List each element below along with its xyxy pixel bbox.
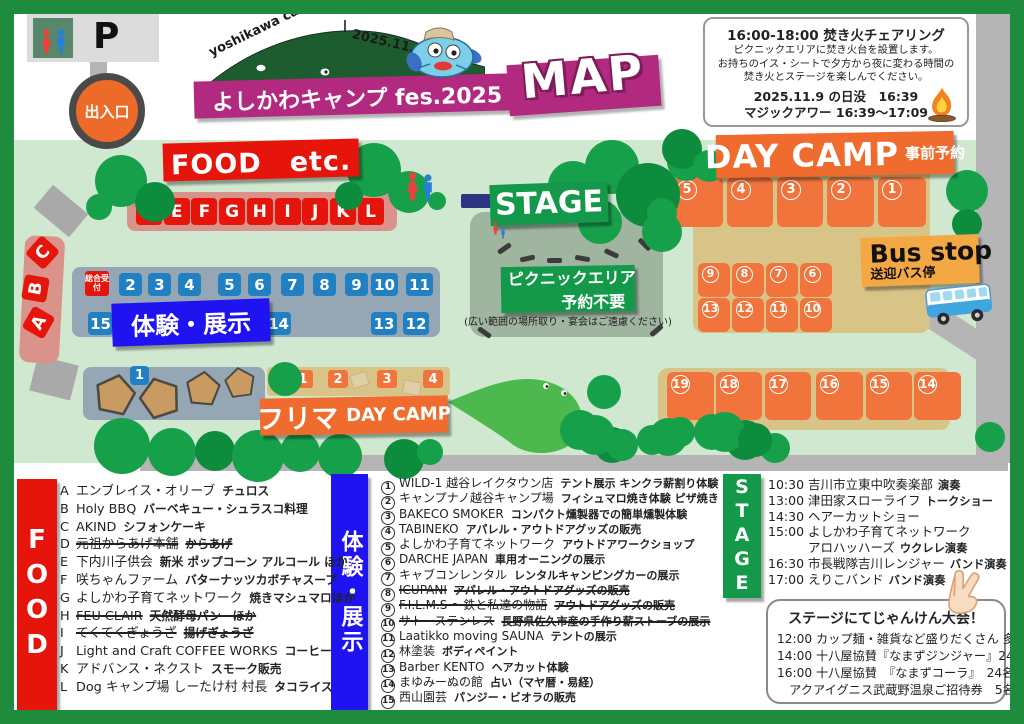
- stall-box-B: B: [21, 274, 50, 303]
- daycamp-spot-2: 2: [827, 177, 874, 227]
- food-legend-banner: FOOD: [17, 479, 57, 710]
- taiken-item-10: 10サトーステンレス長野県佐久市産の手作り薪ストーブの展示: [381, 614, 719, 629]
- stall-box-F: F: [191, 198, 217, 225]
- taiken-spot-10: 10: [371, 273, 398, 296]
- taiken-list: 1WILD-1 越谷レイクタウン店テント展示 キンクラ薪割り体験2キャンプナノ越…: [381, 476, 719, 705]
- food-item-detail: チュロス: [222, 484, 269, 498]
- taiken-item-name: Laatikko moving SAUNA: [399, 629, 544, 643]
- taiken-item-4: 4TABINEKOアパレル・アウトドアグッズの販売: [381, 522, 719, 537]
- frame-border-left: [0, 0, 14, 724]
- food-item-C: CAKINDシフォンケーキ: [60, 519, 355, 537]
- stage-item-time: 13:00: [768, 493, 808, 509]
- info-line: 焚き火とステージを楽しんでください。: [705, 71, 967, 85]
- food-item-name: Dog キャンプ場 しーたけ村 村長: [76, 680, 267, 695]
- food-item-F: F咲ちゃんファームバターナッツカボチャスープ: [60, 572, 355, 590]
- daycamp-banner-sub: 事前予約: [905, 142, 965, 164]
- daycamp-spot-13: 13: [698, 298, 730, 332]
- bus-stop-sign: Bus stop 送迎バス停: [860, 234, 980, 287]
- bus-stop-title: Bus stop: [869, 237, 992, 267]
- food-item-key: A: [60, 483, 76, 501]
- taiken-spot-8: 8: [313, 273, 336, 296]
- taiken-spot-9: 9: [345, 273, 368, 296]
- daycamp-spot-number: 15: [870, 375, 889, 394]
- taiken-item-12: 12林塗装ボディペイント: [381, 644, 719, 659]
- food-item-detail: シフォンケーキ: [123, 520, 205, 534]
- gate-label: 出入口: [84, 101, 129, 122]
- tree-icon: [94, 418, 150, 474]
- woman-icon: [492, 222, 499, 235]
- stage-item-time: 16:30: [768, 556, 808, 572]
- stage-item: アロハッハーズウクレレ演奏: [768, 540, 1007, 556]
- bus-stop-sub: 送迎バス停: [870, 265, 935, 282]
- janken-line: 12:00 カップ麺・雑貨など盛りだくさん 多数: [768, 631, 1004, 648]
- stage-platform: [461, 194, 492, 208]
- taiken-item-name: DARCHE JAPAN: [399, 552, 488, 566]
- stage-legend-label: STAGE: [731, 476, 753, 596]
- tree-icon: [975, 422, 1005, 452]
- picnic-note: (広い範囲の場所取り・宴会はご遠慮ください): [462, 313, 674, 328]
- taiken-item-detail: アウトドアグッズの販売: [554, 599, 675, 612]
- stage-item: 13:00津田家スローライフトークショー: [768, 493, 1007, 509]
- food-item-key: F: [60, 572, 76, 590]
- food-item-D: D元祖からあげ本舗からあげ: [60, 536, 355, 554]
- stage-item-name: よしかわ子育てネットワーク: [808, 524, 971, 539]
- taiken-item-name: Barber KENTO: [399, 660, 484, 674]
- food-item-A: Aエンブレイス・オリーブチュロス: [60, 483, 355, 501]
- bonfire-info-box: 16:00-18:00 焚き火チェアリング ピクニックエリアに焚き火台を設置しま…: [703, 17, 969, 127]
- tree-icon: [148, 428, 196, 476]
- daycamp-spot-number: 4: [731, 180, 751, 200]
- taiken-item-name: まゆみーぬの館: [399, 675, 483, 689]
- flea-banner-title: フリマ: [257, 396, 339, 436]
- food-item-name: FEU CLAIR: [76, 609, 143, 624]
- tree-icon: [417, 439, 443, 465]
- picnic-dash: [547, 258, 562, 263]
- stage-item-name: ヘアーカットショー: [808, 509, 920, 524]
- food-item-detail: 揚げぎょうざ: [184, 626, 254, 640]
- taiken-item-9: 9F.I.L.M.S ～鉄と私達の物語アウトドアグッズの販売: [381, 598, 719, 613]
- flea-banner: フリマ DAY CAMP: [260, 395, 449, 435]
- daycamp-spot-number: 8: [736, 266, 753, 283]
- food-item-detail: バターナッツカボチャスープ: [185, 573, 337, 587]
- stall-box-J: J: [302, 198, 328, 225]
- daycamp-spot-17: 17: [765, 372, 811, 420]
- taiken-spot-15: 15: [88, 312, 113, 335]
- food-item-name: AKIND: [76, 520, 116, 535]
- taiken-item-name: WILD-1 越谷レイクタウン店: [399, 476, 553, 490]
- stage-item: 10:30吉川市立東中吹奏楽部演奏: [768, 477, 1007, 493]
- flea-banner-sub: DAY CAMP: [346, 403, 451, 426]
- frame-border-top: [0, 0, 1024, 14]
- taiken-item-detail: パンジー・ビオラの販売: [454, 691, 576, 704]
- food-item-name: Light and Craft COFFEE WORKS: [76, 644, 278, 659]
- picnic-banner-line2: 予約不要: [501, 288, 635, 314]
- food-item-key: D: [60, 536, 76, 554]
- food-item-G: Gよしかわ子育てネットワーク焼きマシュマロほか: [60, 590, 355, 608]
- janken-lines: 12:00 カップ麺・雑貨など盛りだくさん 多数14:00 十八屋協賛『なまずジ…: [768, 631, 1004, 699]
- food-list: Aエンブレイス・オリーブチュロスBHoly BBQバーベキュー・シュラスコ料理C…: [60, 483, 355, 697]
- food-item-B: BHoly BBQバーベキュー・シュラスコ料理: [60, 501, 355, 519]
- food-item-key: J: [60, 643, 76, 661]
- stage-item-name: 津田家スローライフ: [808, 493, 921, 508]
- reception-box: 総合受付: [85, 271, 109, 296]
- food-item-key: H: [60, 608, 76, 626]
- stage-item-time: 14:30: [768, 509, 808, 525]
- daycamp-spot-5: 5: [673, 177, 723, 227]
- man-icon: [421, 174, 435, 202]
- event-map-page: 1 FOOD etc. 体験・展示 STAGE ピクニックエリア 予約不要 (広…: [0, 0, 1024, 724]
- taiken-spot-12: 12: [403, 312, 429, 335]
- daycamp-spot-number: 9: [702, 266, 719, 283]
- daycamp-spot-number: 1: [882, 180, 902, 200]
- daycamp-spot-10: 10: [800, 298, 832, 332]
- daycamp-spot-16: 16: [816, 372, 863, 420]
- taiken-item-15: 15西山園芸パンジー・ビオラの販売: [381, 690, 719, 705]
- frame-border-bottom: [0, 710, 1024, 724]
- taiken-item-detail: レンタルキャンピングカーの展示: [514, 569, 679, 582]
- tree-icon: [232, 430, 284, 482]
- taiken-map-banner: 体験・展示: [111, 298, 270, 346]
- taiken-spot-4: 4: [178, 273, 201, 296]
- taiken-item-name: ICUPANI: [399, 583, 447, 597]
- flea-pens: [85, 363, 265, 421]
- taiken-spot-3: 3: [148, 273, 171, 296]
- daycamp-spot-6: 6: [800, 263, 832, 297]
- food-item-I: Iてくてくぎょうざ揚げぎょうざ: [60, 625, 355, 643]
- food-item-K: Kアドバンス・ネクストスモーク販売: [60, 661, 355, 679]
- daycamp-spot-12: 12: [732, 298, 764, 332]
- stage-item-tag: バンド演奏: [889, 574, 946, 587]
- food-item-key: B: [60, 501, 76, 519]
- taiken-item-8: 8ICUPANIアパレル・アウトドアグッズの販売: [381, 583, 719, 598]
- taiken-item-name: TABINEKO: [399, 522, 459, 536]
- tree-icon: [318, 434, 362, 478]
- flea-spot-4: 4: [423, 370, 443, 388]
- food-item-detail: タコライス: [274, 680, 332, 694]
- daycamp-spot-1: 1: [878, 177, 926, 227]
- janken-line: 16:00 十八屋協賛 『なまずコーラ』 24名: [768, 665, 1004, 682]
- daycamp-banner-title: DAY CAMP: [705, 134, 900, 175]
- daycamp-spot-15: 15: [866, 372, 912, 420]
- tree-icon: [606, 429, 638, 461]
- food-item-key: C: [60, 519, 76, 537]
- daycamp-spot-11: 11: [766, 298, 798, 332]
- stall-box-G: G: [219, 198, 245, 225]
- taiken-item-name: F.I.L.M.S ～鉄と私達の物語: [399, 598, 547, 612]
- map-word: MAP: [519, 45, 647, 111]
- tree-icon: [335, 182, 363, 210]
- daycamp-spot-number: 10: [804, 301, 821, 318]
- food-item-name: アドバンス・ネクスト: [76, 662, 204, 677]
- taiken-item-detail: ボディペイント: [442, 645, 518, 658]
- taiken-item-number: 15: [381, 695, 395, 709]
- info-title: 16:00-18:00 焚き火チェアリング: [705, 24, 967, 44]
- tree-icon: [738, 423, 772, 457]
- taiken-item-name: キャブコンレンタル: [399, 568, 507, 582]
- food-item-name: 下内川子供会: [76, 555, 153, 570]
- stage-item-tag: ウクレレ演奏: [900, 542, 968, 555]
- food-item-H: HFEU CLAIR天然酵母パン ほか: [60, 608, 355, 626]
- daycamp-spot-number: 12: [736, 301, 753, 318]
- stage-item: 14:30ヘアーカットショー: [768, 509, 1007, 525]
- food-item-key: G: [60, 590, 76, 608]
- info-line: ピクニックエリアに焚き火台を設置します。: [705, 44, 967, 58]
- daycamp-spot-number: 19: [671, 375, 690, 394]
- stage-item: 15:00よしかわ子育てネットワーク: [768, 524, 1007, 540]
- daycamp-spot-number: 7: [770, 266, 787, 283]
- taiken-item-name: よしかわ子育てネットワーク: [399, 537, 555, 551]
- tree-icon: [280, 432, 320, 472]
- taiken-spot-7: 7: [281, 273, 304, 296]
- taiken-item-name: BAKECO SMOKER: [399, 507, 504, 521]
- catfish-mascot-icon: [400, 22, 484, 80]
- taiken-item-detail: アパレル・アウトドアグッズの販売: [454, 584, 630, 597]
- man-icon: [55, 29, 67, 55]
- man-icon: [500, 227, 506, 239]
- entrance-gate-sign: 出入口: [69, 73, 145, 149]
- janken-line: アクアイグニス武蔵野温泉ご招待券 5名: [768, 682, 1004, 699]
- tree-icon: [268, 362, 302, 396]
- food-item-name: エンブレイス・オリーブ: [76, 484, 215, 499]
- food-item-detail: バーベキュー・シュラスコ料理: [143, 502, 308, 516]
- food-item-detail: スモーク販売: [211, 662, 282, 676]
- taiken-item-14: 14まゆみーぬの館占い（マヤ暦・易経）: [381, 675, 719, 690]
- parking-sign: P: [27, 14, 159, 62]
- taiken-item-detail: 占い（マヤ暦・易経）: [490, 676, 600, 689]
- taiken-item-detail: テント展示 キンクラ薪割り体験: [560, 477, 718, 490]
- flea-pen-number: 1: [130, 366, 149, 385]
- stage-item-time: 17:00: [768, 572, 808, 588]
- taiken-item-7: 7キャブコンレンタルレンタルキャンピングカーの展示: [381, 568, 719, 583]
- taiken-item-13: 13Barber KENTOヘアカット体験: [381, 660, 719, 675]
- food-item-L: LDog キャンプ場 しーたけ村 村長タコライス: [60, 679, 355, 697]
- daycamp-spot-number: 5: [677, 180, 697, 200]
- food-item-key: K: [60, 661, 76, 679]
- picnic-banner-line1: ピクニックエリア: [501, 264, 635, 290]
- daycamp-spot-number: 6: [804, 266, 821, 283]
- tree-icon: [946, 170, 988, 212]
- bonfire-icon: [923, 86, 961, 122]
- food-item-detail: 天然酵母パン ほか: [150, 609, 256, 623]
- food-item-name: てくてくぎょうざ: [76, 626, 177, 641]
- daycamp-spot-19: 19: [667, 372, 714, 420]
- stage-item-name: 市長戦隊吉川レンジャー: [808, 556, 945, 571]
- food-item-key: E: [60, 554, 76, 572]
- taiken-spot-5: 5: [218, 273, 241, 296]
- taiken-item-1: 1WILD-1 越谷レイクタウン店テント展示 キンクラ薪割り体験: [381, 476, 719, 491]
- food-item-detail: コーヒー: [285, 644, 332, 658]
- food-item-detail: からあげ: [185, 537, 232, 551]
- taiken-item-name: サトーステンレス: [399, 614, 494, 628]
- stage-item-tag: トークショー: [926, 495, 994, 508]
- food-item-J: JLight and Craft COFFEE WORKSコーヒー: [60, 643, 355, 661]
- stage-item-time: 10:30: [768, 477, 808, 493]
- tree-icon: [195, 431, 235, 471]
- bus-icon: [922, 277, 996, 330]
- food-item-name: 元祖からあげ本舗: [76, 537, 178, 552]
- taiken-spot-13: 13: [371, 312, 397, 335]
- daycamp-spot-number: 14: [918, 375, 937, 394]
- tree-icon: [647, 198, 677, 228]
- frame-border-right: [1010, 0, 1024, 724]
- stage-item-time: 15:00: [768, 524, 808, 540]
- daycamp-spot-14: 14: [914, 372, 961, 420]
- food-item-E: E下内川子供会新米 ポップコーン アルコール ほか: [60, 554, 355, 572]
- daycamp-spot-number: 17: [769, 375, 788, 394]
- daycamp-spot-number: 11: [770, 301, 787, 318]
- taiken-item-detail: アパレル・アウトドアグッズの販売: [466, 523, 642, 536]
- daycamp-spot-4: 4: [727, 177, 773, 227]
- flea-spot-3: 3: [377, 370, 397, 388]
- food-item-detail: 新米 ポップコーン アルコール ほか: [160, 555, 348, 569]
- daycamp-spot-number: 3: [781, 180, 801, 200]
- stage-item-name: えりこバンド: [808, 572, 884, 587]
- taiken-item-detail: コンパクト燻製器での簡単燻製体験: [511, 508, 688, 521]
- tree-icon: [135, 182, 175, 222]
- taiken-item-6: 6DARCHE JAPAN車用オーニングの展示: [381, 552, 719, 567]
- taiken-spot-11: 11: [406, 273, 433, 296]
- daycamp-spot-number: 2: [831, 180, 851, 200]
- taiken-item-5: 5よしかわ子育てネットワークアウトドアワークショップ: [381, 537, 719, 552]
- stage-item-tag: 演奏: [938, 479, 961, 492]
- taiken-item-name: 林塗装: [399, 644, 435, 658]
- woman-icon: [40, 29, 53, 55]
- taiken-item-detail: フィシュマロ焼き体験 ピザ焼き: [561, 492, 719, 505]
- taiken-item-name: キャンプナノ越谷キャンプ場: [399, 491, 554, 505]
- stall-box-I: I: [275, 198, 301, 225]
- taiken-item-detail: 車用オーニングの展示: [495, 553, 605, 566]
- daycamp-spot-number: 13: [702, 301, 719, 318]
- stage-map-banner: STAGE: [489, 181, 608, 226]
- taiken-spot-2: 2: [119, 273, 142, 296]
- taiken-item-detail: テントの展示: [551, 630, 617, 643]
- stage-legend-banner: STAGE: [723, 474, 761, 598]
- daycamp-spot-7: 7: [766, 263, 798, 297]
- taiken-item-3: 3BAKECO SMOKERコンパクト燻製器での簡単燻製体験: [381, 507, 719, 522]
- taiken-item-name: 西山園芸: [399, 690, 447, 704]
- taiken-item-detail: ヘアカット体験: [491, 661, 568, 674]
- daycamp-spot-8: 8: [732, 263, 764, 297]
- stage-item-name: アロハッハーズ: [808, 540, 895, 555]
- parking-label: P: [93, 16, 119, 57]
- tree-icon: [86, 194, 112, 220]
- food-etc-banner: FOOD etc.: [163, 138, 360, 181]
- woman-icon: [405, 172, 420, 202]
- janken-line: 14:00 十八屋協賛『なまずジンジャー』24名: [768, 648, 1004, 665]
- food-item-detail: 焼きマシュマロほか: [249, 591, 355, 605]
- tree-icon: [587, 375, 621, 409]
- daycamp-spot-9: 9: [698, 263, 730, 297]
- restroom-icon: [33, 18, 73, 58]
- food-item-key: I: [60, 625, 76, 643]
- daycamp-spot-number: 16: [820, 375, 839, 394]
- stage-item-name: 吉川市立東中吹奏楽部: [808, 477, 933, 492]
- taiken-item-2: 2キャンプナノ越谷キャンプ場フィシュマロ焼き体験 ピザ焼き: [381, 491, 719, 506]
- taiken-spot-6: 6: [248, 273, 271, 296]
- picnic-banner: ピクニックエリア 予約不要: [501, 265, 636, 313]
- picnic-table-icon: [402, 380, 422, 397]
- food-legend-label: FOOD: [22, 525, 52, 665]
- daycamp-banner: DAY CAMP 事前予約: [716, 131, 955, 178]
- daycamp-spot-number: 18: [720, 375, 739, 394]
- flea-spot-2: 2: [328, 370, 348, 388]
- stall-box-H: H: [247, 198, 273, 225]
- daycamp-spot-3: 3: [777, 177, 823, 227]
- tree-icon: [649, 418, 687, 456]
- taiken-item-11: 11Laatikko moving SAUNAテントの展示: [381, 629, 719, 644]
- food-item-name: Holy BBQ: [76, 502, 136, 517]
- taiken-item-detail: アウトドアワークショップ: [562, 538, 694, 551]
- food-item-key: L: [60, 679, 76, 697]
- food-item-name: よしかわ子育てネットワーク: [76, 591, 242, 606]
- food-item-name: 咲ちゃんファーム: [76, 573, 178, 588]
- taiken-item-detail: 長野県佐久市産の手作り薪ストーブの展示: [501, 615, 710, 628]
- info-line: お持ちのイス・シートで夕方から夜に変わる時間の: [705, 58, 967, 72]
